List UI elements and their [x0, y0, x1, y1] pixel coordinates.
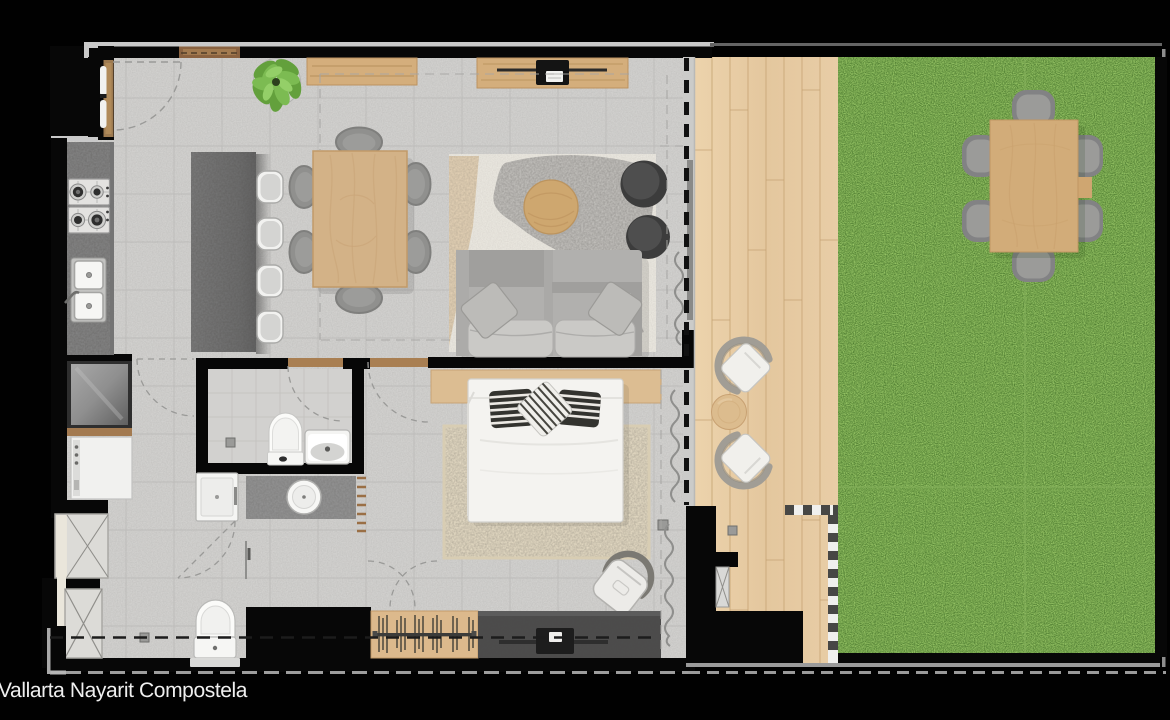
svg-text:Vallarta Nayarit Compostela: Vallarta Nayarit Compostela — [0, 679, 248, 702]
